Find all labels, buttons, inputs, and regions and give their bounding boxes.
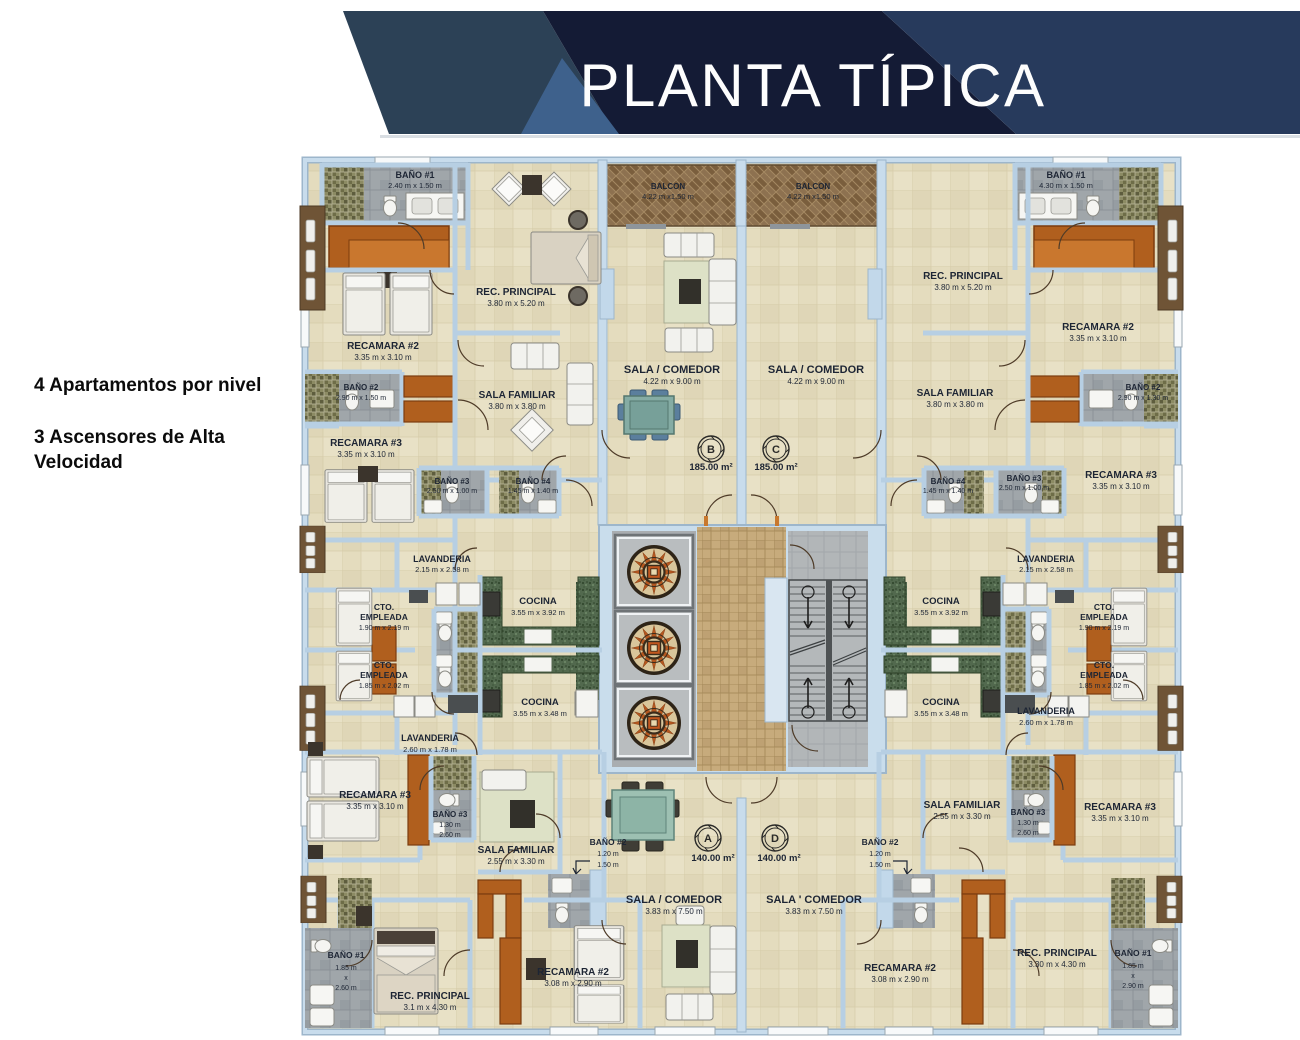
- svg-text:2.90 m x 1.50 m: 2.90 m x 1.50 m: [336, 395, 386, 402]
- svg-text:RECAMARA #2: RECAMARA #2: [537, 967, 609, 978]
- svg-text:CTO.: CTO.: [374, 660, 394, 670]
- svg-text:BALCON: BALCON: [651, 182, 685, 191]
- svg-text:1.45 m x 1.40 m: 1.45 m x 1.40 m: [923, 488, 973, 495]
- svg-text:SALA / COMEDOR: SALA / COMEDOR: [626, 894, 722, 906]
- svg-text:BAÑO #1: BAÑO #1: [1115, 948, 1152, 958]
- svg-text:3.83 m x 7.50 m: 3.83 m x 7.50 m: [645, 907, 703, 916]
- svg-text:COCINA: COCINA: [922, 596, 960, 607]
- svg-text:x: x: [344, 975, 348, 982]
- svg-text:3.1 m x 4.30 m: 3.1 m x 4.30 m: [404, 1003, 457, 1012]
- svg-text:EMPLEADA: EMPLEADA: [360, 612, 408, 622]
- svg-text:4.22 m x1.50 m: 4.22 m x1.50 m: [787, 192, 839, 201]
- svg-text:3.35 m x 3.10 m: 3.35 m x 3.10 m: [346, 802, 404, 811]
- svg-text:1.90 m x 2.19 m: 1.90 m x 2.19 m: [1079, 625, 1129, 632]
- svg-text:REC. PRINCIPAL: REC. PRINCIPAL: [476, 287, 556, 298]
- svg-text:D: D: [771, 833, 779, 845]
- svg-text:2.60 m x 1.78 m: 2.60 m x 1.78 m: [403, 745, 457, 754]
- svg-text:2.60 m x 1.78 m: 2.60 m x 1.78 m: [1019, 718, 1073, 727]
- svg-text:1.85 m x 2.02 m: 1.85 m x 2.02 m: [359, 683, 409, 690]
- svg-text:2.90 m x 1.30 m: 2.90 m x 1.30 m: [1118, 395, 1168, 402]
- svg-text:3.30 m x 4.30 m: 3.30 m x 4.30 m: [1028, 960, 1086, 969]
- svg-text:BAÑO #3: BAÑO #3: [1007, 474, 1042, 483]
- svg-text:x: x: [1131, 973, 1135, 980]
- svg-text:3.80 m x 5.20 m: 3.80 m x 5.20 m: [487, 299, 545, 308]
- svg-text:140.00 m²: 140.00 m²: [757, 853, 800, 864]
- svg-text:LAVANDERIA: LAVANDERIA: [413, 554, 471, 564]
- svg-text:4 Apartamentos por nivel: 4 Apartamentos por nivel: [34, 375, 261, 396]
- svg-text:BAÑO #2: BAÑO #2: [1126, 383, 1161, 392]
- svg-text:CTO.: CTO.: [1094, 660, 1114, 670]
- svg-text:SALA FAMILIAR: SALA FAMILIAR: [917, 388, 995, 399]
- svg-text:3.55 m x 3.92 m: 3.55 m x 3.92 m: [914, 608, 968, 617]
- svg-text:1.20 m: 1.20 m: [597, 851, 619, 858]
- svg-text:2.60 m: 2.60 m: [439, 832, 461, 839]
- svg-text:2.50 m x 1.00 m: 2.50 m x 1.00 m: [427, 488, 477, 495]
- svg-text:COCINA: COCINA: [519, 596, 557, 607]
- svg-text:SALA / COMEDOR: SALA / COMEDOR: [768, 364, 864, 376]
- svg-text:1.85 m x 2.02 m: 1.85 m x 2.02 m: [1079, 683, 1129, 690]
- svg-text:BAÑO #2: BAÑO #2: [344, 383, 379, 392]
- svg-text:3.55 m x 3.48 m: 3.55 m x 3.48 m: [914, 709, 968, 718]
- svg-text:1.30 m: 1.30 m: [1017, 820, 1039, 827]
- svg-text:1.45 m x 1.40 m: 1.45 m x 1.40 m: [508, 488, 558, 495]
- svg-text:140.00 m²: 140.00 m²: [691, 853, 734, 864]
- svg-text:4.22 m x 9.00 m: 4.22 m x 9.00 m: [643, 377, 701, 386]
- svg-text:4.22 m x1.50 m: 4.22 m x1.50 m: [642, 192, 694, 201]
- svg-text:RECAMARA #3: RECAMARA #3: [339, 790, 411, 801]
- svg-text:REC. PRINCIPAL: REC. PRINCIPAL: [1017, 948, 1097, 959]
- svg-text:185.00 m²: 185.00 m²: [689, 462, 732, 473]
- svg-text:2.55 m x 3.30 m: 2.55 m x 3.30 m: [487, 857, 545, 866]
- svg-text:3.55 m x 3.48 m: 3.55 m x 3.48 m: [513, 709, 567, 718]
- svg-text:Velocidad: Velocidad: [34, 452, 123, 473]
- svg-text:1.85 m: 1.85 m: [335, 965, 357, 972]
- svg-text:BALCON: BALCON: [796, 182, 830, 191]
- svg-text:2.15 m x 2.58 m: 2.15 m x 2.58 m: [415, 565, 469, 574]
- svg-text:BAÑO #1: BAÑO #1: [1046, 170, 1085, 180]
- svg-text:COCINA: COCINA: [521, 697, 559, 708]
- svg-text:2.50 m x 1.00 m: 2.50 m x 1.00 m: [999, 485, 1049, 492]
- svg-text:3.55 m x 3.92 m: 3.55 m x 3.92 m: [511, 608, 565, 617]
- svg-text:BAÑO #4: BAÑO #4: [931, 477, 966, 486]
- svg-text:3.83 m x 7.50 m: 3.83 m x 7.50 m: [785, 907, 843, 916]
- svg-text:1.50 m: 1.50 m: [869, 862, 891, 869]
- svg-text:COCINA: COCINA: [922, 697, 960, 708]
- svg-text:1.90 m x 2.19 m: 1.90 m x 2.19 m: [359, 625, 409, 632]
- svg-text:4.22 m x 9.00 m: 4.22 m x 9.00 m: [787, 377, 845, 386]
- svg-text:3.80 m x 3.80 m: 3.80 m x 3.80 m: [926, 400, 984, 409]
- svg-text:LAVANDERIA: LAVANDERIA: [401, 733, 459, 743]
- svg-text:BAÑO #3: BAÑO #3: [435, 477, 470, 486]
- svg-text:3.80 m x 5.20 m: 3.80 m x 5.20 m: [934, 283, 992, 292]
- svg-text:SALA FAMILIAR: SALA FAMILIAR: [479, 390, 557, 401]
- svg-text:EMPLEADA: EMPLEADA: [1080, 670, 1128, 680]
- svg-text:C: C: [772, 444, 780, 456]
- svg-text:BAÑO #3: BAÑO #3: [1011, 808, 1046, 817]
- svg-text:1.50 m: 1.50 m: [597, 862, 619, 869]
- svg-text:RECAMARA #2: RECAMARA #2: [347, 341, 419, 352]
- svg-text:EMPLEADA: EMPLEADA: [360, 670, 408, 680]
- svg-text:4.30 m x 1.50 m: 4.30 m x 1.50 m: [1039, 181, 1093, 190]
- svg-text:REC. PRINCIPAL: REC. PRINCIPAL: [390, 991, 470, 1002]
- svg-text:185.00 m²: 185.00 m²: [754, 462, 797, 473]
- svg-text:RECAMARA #2: RECAMARA #2: [1062, 322, 1134, 333]
- svg-text:2.60 m: 2.60 m: [335, 985, 357, 992]
- svg-text:EMPLEADA: EMPLEADA: [1080, 612, 1128, 622]
- svg-text:RECAMARA #3: RECAMARA #3: [1085, 470, 1157, 481]
- svg-text:SALA FAMILIAR: SALA FAMILIAR: [924, 800, 1002, 811]
- svg-text:3.80 m x 3.80 m: 3.80 m x 3.80 m: [488, 402, 546, 411]
- svg-text:SALA FAMILIAR: SALA FAMILIAR: [478, 845, 556, 856]
- svg-text:3.08 m x 2.90 m: 3.08 m x 2.90 m: [871, 975, 929, 984]
- svg-text:1.85 m: 1.85 m: [1122, 963, 1144, 970]
- svg-text:BAÑO #4: BAÑO #4: [516, 477, 551, 486]
- svg-text:BAÑO #1: BAÑO #1: [395, 170, 434, 180]
- svg-text:2.15 m x 2.58 m: 2.15 m x 2.58 m: [1019, 565, 1073, 574]
- svg-text:B: B: [707, 444, 715, 456]
- svg-text:2.40 m x 1.50 m: 2.40 m x 1.50 m: [388, 181, 442, 190]
- svg-text:BAÑO #2: BAÑO #2: [862, 837, 899, 847]
- svg-text:CTO.: CTO.: [1094, 602, 1114, 612]
- svg-text:3.35 m x 3.10 m: 3.35 m x 3.10 m: [1069, 334, 1127, 343]
- svg-text:RECAMARA #3: RECAMARA #3: [330, 438, 402, 449]
- svg-text:LAVANDERIA: LAVANDERIA: [1017, 554, 1075, 564]
- svg-text:SALA / COMEDOR: SALA / COMEDOR: [624, 364, 720, 376]
- svg-text:RECAMARA #3: RECAMARA #3: [1084, 802, 1156, 813]
- svg-text:3 Ascensores de Alta: 3 Ascensores de Alta: [34, 427, 225, 448]
- svg-text:1.30 m: 1.30 m: [439, 822, 461, 829]
- svg-text:BAÑO #1: BAÑO #1: [328, 950, 365, 960]
- svg-text:RECAMARA #2: RECAMARA #2: [864, 963, 936, 974]
- svg-text:A: A: [704, 833, 712, 845]
- svg-text:SALA ' COMEDOR: SALA ' COMEDOR: [766, 894, 862, 906]
- svg-text:3.08 m x 2.90 m: 3.08 m x 2.90 m: [544, 979, 602, 988]
- svg-text:3.35 m x 3.10 m: 3.35 m x 3.10 m: [337, 450, 395, 459]
- svg-text:3.35 m x 3.10 m: 3.35 m x 3.10 m: [1092, 482, 1150, 491]
- svg-text:2.55 m x 3.30 m: 2.55 m x 3.30 m: [933, 812, 991, 821]
- svg-text:3.35 m x 3.10 m: 3.35 m x 3.10 m: [1091, 814, 1149, 823]
- svg-text:CTO.: CTO.: [374, 602, 394, 612]
- svg-text:PLANTA TÍPICA: PLANTA TÍPICA: [579, 52, 1046, 119]
- svg-text:2.60 m: 2.60 m: [1017, 830, 1039, 837]
- svg-text:BAÑO #3: BAÑO #3: [433, 810, 468, 819]
- svg-text:REC. PRINCIPAL: REC. PRINCIPAL: [923, 271, 1003, 282]
- svg-text:2.90 m: 2.90 m: [1122, 983, 1144, 990]
- svg-text:LAVANDERIA: LAVANDERIA: [1017, 706, 1075, 716]
- svg-text:3.35 m x 3.10 m: 3.35 m x 3.10 m: [354, 353, 412, 362]
- svg-text:BAÑO #2: BAÑO #2: [590, 837, 627, 847]
- svg-text:1.20 m: 1.20 m: [869, 851, 891, 858]
